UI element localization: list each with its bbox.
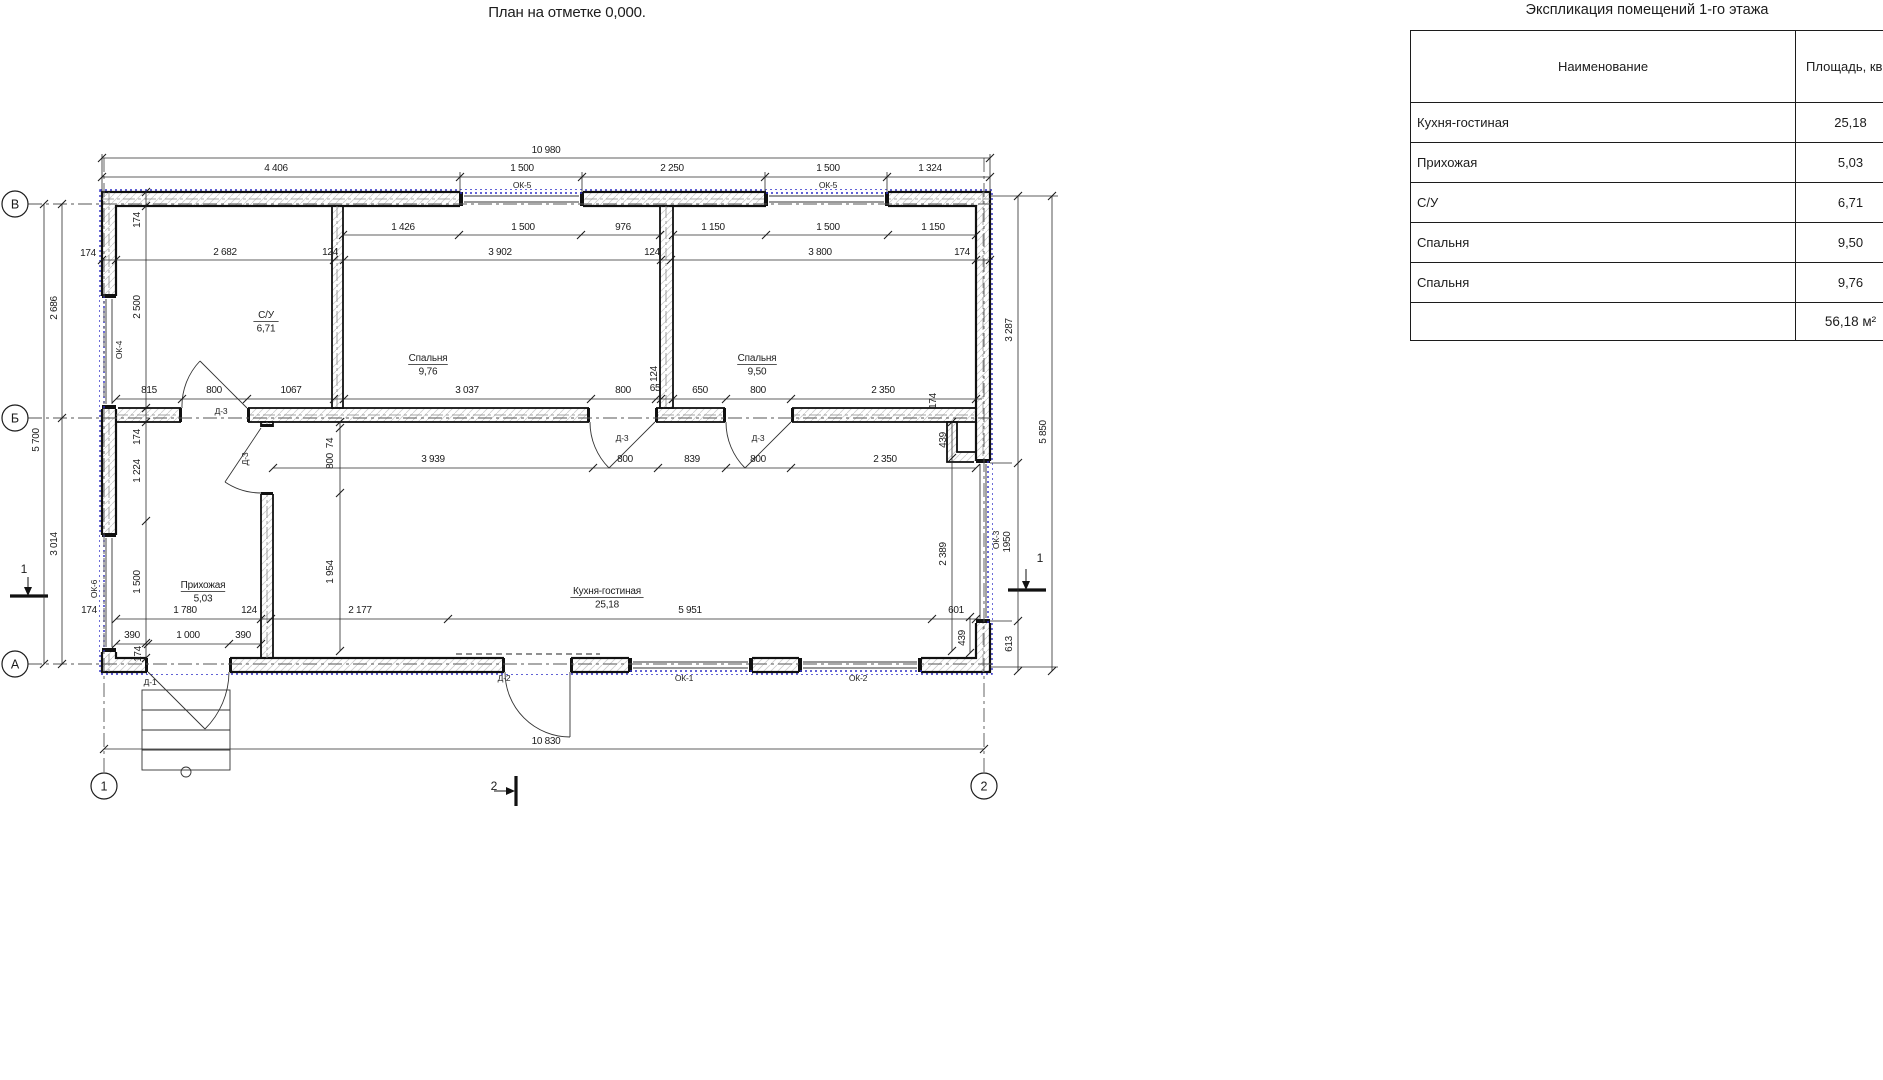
explication-table: Наименование Площадь, кв.м Кухня-гостина… bbox=[1410, 30, 1883, 341]
dimension-label-vertical: 124 bbox=[649, 365, 660, 382]
room-name-label: Спальня bbox=[409, 353, 448, 364]
dimension-label-vertical: 1950 bbox=[1002, 531, 1013, 553]
dimension-label-vertical: 613 bbox=[1004, 635, 1015, 652]
dimension-label: 1 150 bbox=[921, 222, 945, 233]
drawing-sheet: План на отметке 0,000. Экспликация помещ… bbox=[0, 0, 1883, 1080]
door-label: Д-2 bbox=[498, 673, 511, 683]
dimension-label: 815 bbox=[141, 385, 158, 396]
dimension-label: 124 bbox=[322, 247, 339, 258]
window-label: ОК-5 bbox=[513, 180, 532, 190]
room-area-cell: 9,76 bbox=[1796, 263, 1883, 302]
room-area-label: 25,18 bbox=[595, 600, 620, 611]
section-mark-label: 1 bbox=[1037, 551, 1044, 565]
dimension-label: 1 150 bbox=[701, 222, 725, 233]
axis-bubble-label: А bbox=[11, 658, 20, 672]
dimension-label: 800 bbox=[750, 454, 767, 465]
window-label: ОК-1 bbox=[675, 673, 694, 683]
dimension-label: 390 bbox=[235, 630, 252, 641]
dimension-label: 2 177 bbox=[348, 605, 372, 616]
dimension-label-vertical: 2 686 bbox=[49, 296, 60, 320]
table-row: С/У6,71 bbox=[1411, 183, 1883, 223]
room-area-cell: 9,50 bbox=[1796, 223, 1883, 262]
table-total-row: 56,18 м² bbox=[1411, 303, 1883, 340]
dimension-label-vertical: 174 bbox=[132, 428, 143, 445]
dimension-label: 174 bbox=[81, 605, 98, 616]
dimension-label: 10 830 bbox=[532, 736, 562, 747]
dimension-label-vertical: 439 bbox=[938, 431, 949, 448]
dimension-label: 2 250 bbox=[660, 163, 684, 174]
plan-labels: 10 9804 4061 5002 2501 5001 3241 4261 50… bbox=[2, 145, 1049, 799]
room-area-cell: 25,18 bbox=[1796, 103, 1883, 142]
door-label: Д-3 bbox=[752, 433, 765, 443]
dimension-label: 4 406 bbox=[264, 163, 288, 174]
column-header-area: Площадь, кв.м bbox=[1796, 31, 1883, 102]
dimension-label: 800 bbox=[615, 385, 632, 396]
dimension-label: 65 bbox=[650, 383, 661, 394]
section-mark-label: 1 bbox=[21, 562, 28, 576]
dimension-label: 1 500 bbox=[816, 222, 840, 233]
room-area-label: 5,03 bbox=[194, 594, 213, 605]
window-label: ОК-6 bbox=[89, 579, 99, 598]
door-label: Д-3 bbox=[616, 433, 629, 443]
dimension-label: 174 bbox=[80, 248, 97, 259]
room-area-label: 9,76 bbox=[419, 367, 438, 378]
dimension-label: 800 bbox=[617, 454, 634, 465]
dimension-label: 124 bbox=[241, 605, 258, 616]
room-name-cell: Спальня bbox=[1411, 223, 1796, 262]
dimension-label-vertical: 2 500 bbox=[132, 295, 143, 319]
window-label: ОК-4 bbox=[114, 340, 124, 359]
windows bbox=[100, 190, 992, 674]
axis-bubble-label: 1 bbox=[101, 780, 108, 794]
dimension-label-vertical: 1 500 bbox=[132, 570, 143, 594]
dimension-label: 1 780 bbox=[173, 605, 197, 616]
dimension-label: 1 324 bbox=[918, 163, 942, 174]
window-label: ОК-5 bbox=[819, 180, 838, 190]
table-row: Кухня-гостиная25,18 bbox=[1411, 103, 1883, 143]
dimension-label-vertical: 3 014 bbox=[49, 532, 60, 556]
room-area-cell: 5,03 bbox=[1796, 143, 1883, 182]
room-area-label: 6,71 bbox=[257, 324, 276, 335]
door-leaf-terrace bbox=[505, 672, 570, 737]
dimension-label-vertical: 174 bbox=[928, 392, 939, 409]
section-mark-label: 2 bbox=[491, 779, 498, 793]
dimension-label: 2 350 bbox=[871, 385, 895, 396]
door-label: Д-3 bbox=[215, 406, 228, 416]
table-row: Спальня9,50 bbox=[1411, 223, 1883, 263]
dimension-label: 3 939 bbox=[421, 454, 445, 465]
dimension-label: 976 bbox=[615, 222, 632, 233]
explication-table-title: Экспликация помещений 1-го этажа bbox=[1410, 2, 1883, 18]
dimension-label: 124 bbox=[644, 247, 661, 258]
dimension-label-vertical: 5 700 bbox=[31, 428, 42, 452]
dimension-label: 5 951 bbox=[678, 605, 702, 616]
room-name-cell: С/У bbox=[1411, 183, 1796, 222]
table-header: Наименование Площадь, кв.м bbox=[1411, 31, 1883, 103]
dimension-label: 1 500 bbox=[511, 222, 535, 233]
dimension-label: 10 980 bbox=[532, 145, 562, 156]
room-name-cell: Кухня-гостиная bbox=[1411, 103, 1796, 142]
door-label: Д-1 bbox=[144, 677, 157, 687]
dimension-label-vertical: 174 bbox=[133, 645, 144, 662]
room-name-label: Кухня-гостиная bbox=[573, 586, 641, 597]
room-area-cell: 6,71 bbox=[1796, 183, 1883, 222]
dimension-label: 2 682 bbox=[213, 247, 237, 258]
total-area-value: 56,18 м² bbox=[1796, 303, 1883, 340]
axis-bubble-label: 2 bbox=[981, 780, 988, 794]
dimension-label: 390 bbox=[124, 630, 141, 641]
window-label: ОК-3 bbox=[991, 530, 1001, 549]
dimension-label-vertical: 3 287 bbox=[1004, 318, 1015, 342]
room-area-label: 9,50 bbox=[748, 367, 767, 378]
dimension-label-vertical: 800 bbox=[325, 452, 336, 469]
column-header-name: Наименование bbox=[1411, 31, 1796, 102]
room-name-cell: Прихожая bbox=[1411, 143, 1796, 182]
dimension-label: 1 000 bbox=[176, 630, 200, 641]
dimension-label: 601 bbox=[948, 605, 965, 616]
dimension-label: 174 bbox=[954, 247, 971, 258]
insulation-contour bbox=[100, 190, 992, 674]
walls bbox=[102, 192, 990, 672]
dimension-label: 3 037 bbox=[455, 385, 479, 396]
axis-bubble-label: В bbox=[11, 198, 19, 212]
room-name-label: Прихожая bbox=[181, 580, 226, 591]
axis-bubble-label: Б bbox=[11, 412, 19, 426]
dimension-label: 3 902 bbox=[488, 247, 512, 258]
dimension-label-vertical: 1 954 bbox=[325, 560, 336, 584]
room-name-cell: Спальня bbox=[1411, 263, 1796, 302]
plan-title: План на отметке 0,000. bbox=[436, 4, 698, 21]
dimension-label: 1067 bbox=[280, 385, 302, 396]
dimension-label: 800 bbox=[206, 385, 223, 396]
section-marks bbox=[10, 569, 1046, 806]
table-row: Прихожая5,03 bbox=[1411, 143, 1883, 183]
dimension-label-vertical: 439 bbox=[957, 629, 968, 646]
wall-stub-kitchen bbox=[947, 422, 976, 462]
window-label: ОК-2 bbox=[849, 673, 868, 683]
door-label: Д-3 bbox=[240, 452, 250, 465]
dimension-label: 800 bbox=[750, 385, 767, 396]
dimension-label-vertical: 1 224 bbox=[132, 459, 143, 483]
dimension-label-vertical: 174 bbox=[132, 211, 143, 228]
dimension-label: 2 350 bbox=[873, 454, 897, 465]
room-name-label: Спальня bbox=[738, 353, 777, 364]
dimension-label: 650 bbox=[692, 385, 709, 396]
wall-centerlines bbox=[102, 192, 990, 672]
dimension-label: 839 bbox=[684, 454, 701, 465]
stairs bbox=[142, 690, 230, 777]
door-leaf-entrance bbox=[148, 672, 229, 729]
dimension-label: 1 500 bbox=[510, 163, 534, 174]
dimension-label-vertical: 2 389 bbox=[938, 542, 949, 566]
dimension-label-vertical: 74 bbox=[325, 437, 336, 448]
table-row: Спальня9,76 bbox=[1411, 263, 1883, 303]
dimension-label: 1 426 bbox=[391, 222, 415, 233]
dimension-label: 1 500 bbox=[816, 163, 840, 174]
dimension-label: 3 800 bbox=[808, 247, 832, 258]
room-name-label: С/У bbox=[258, 310, 275, 321]
dimension-label-vertical: 5 850 bbox=[1038, 420, 1049, 444]
